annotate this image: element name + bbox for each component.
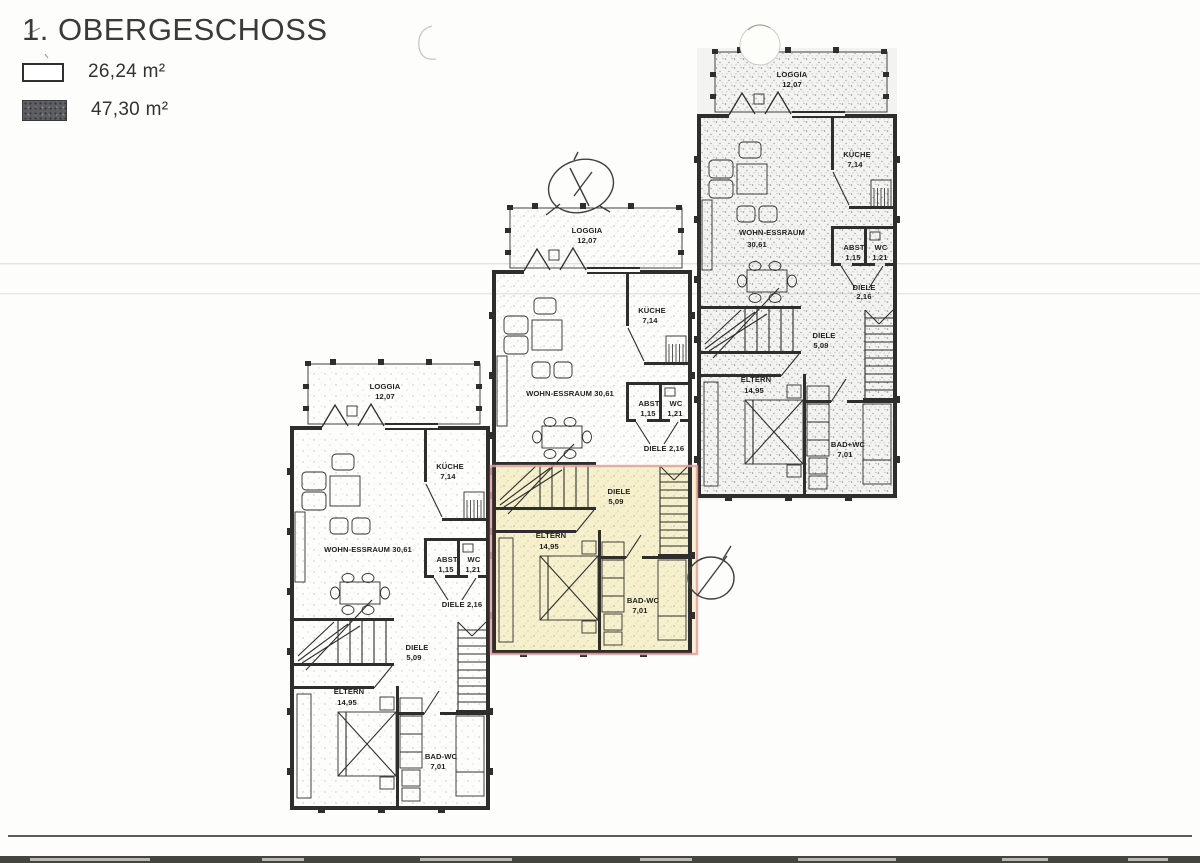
room-label-eltern: ELTERN: [536, 531, 567, 540]
room-label-wohn: WOHN-ESSRAUM 30,61: [324, 545, 412, 554]
room-label-diele5: 5,09: [813, 341, 828, 350]
room-label-bad: BAD-WC: [425, 752, 458, 761]
legend-label-white: 26,24 m²: [88, 61, 165, 83]
room-label-loggia: 12,07: [577, 236, 597, 245]
room-label-diele2: 2,16: [856, 292, 871, 301]
room-label-wc: 1,21: [465, 565, 481, 574]
bottom-scan-bar: [0, 835, 1200, 863]
floorplan-units: LOGGIA12,07KÜCHE7,14WOHN-ESSRAUM 30,61AB…: [287, 47, 900, 813]
room-label-abst: 1,15: [640, 409, 656, 418]
room-label-kueche: KÜCHE: [843, 150, 871, 159]
area-legend: 26,24 m² 47,30 m²: [22, 61, 328, 121]
unit-top-right: LOGGIA12,07KÜCHE7,14WOHN-ESSRAUM30,61ABS…: [694, 47, 900, 501]
page-title: 1. OBERGESCHOSS: [22, 12, 328, 48]
title-block: 1. OBERGESCHOSS 26,24 m² 47,30 m²: [22, 12, 328, 137]
room-label-bad: BAD-WC: [627, 596, 660, 605]
room-label-loggia: 12,07: [375, 392, 395, 401]
room-label-bad: 7,01: [430, 762, 446, 771]
room-label-eltern: 14,95: [539, 542, 559, 551]
room-label-diele5: DIELE: [608, 487, 631, 496]
room-label-abst: 1,15: [438, 565, 454, 574]
legend-label-dark: 47,30 m²: [91, 99, 168, 121]
room-label-diele2: DIELE: [853, 283, 876, 292]
room-label-diele5: DIELE: [813, 331, 836, 340]
room-label-diele5: DIELE: [406, 643, 429, 652]
room-label-loggia: LOGGIA: [572, 226, 603, 235]
room-label-abst: ABST: [843, 243, 864, 252]
room-label-bad: BAD+WC: [831, 440, 866, 449]
room-label-wc: WC: [670, 399, 683, 408]
room-label-bad: 7,01: [837, 450, 853, 459]
scan-smudge-arc: [419, 26, 436, 59]
room-label-abst: ABST: [638, 399, 659, 408]
room-label-wohn: WOHN-ESSRAUM 30,61: [526, 389, 614, 398]
room-label-kueche: 7,14: [847, 160, 863, 169]
room-label-diele2: DIELE 2,16: [644, 444, 684, 453]
room-label-wc: WC: [875, 243, 888, 252]
room-label-wc: 1,21: [667, 409, 683, 418]
unit-bottom-left: LOGGIA12,07KÜCHE7,14WOHN-ESSRAUM 30,61AB…: [287, 359, 493, 813]
unit-middle: LOGGIA12,07KÜCHE7,14WOHN-ESSRAUM 30,61AB…: [489, 203, 695, 657]
room-label-wc: WC: [468, 555, 481, 564]
room-label-kueche: KÜCHE: [638, 306, 666, 315]
room-label-eltern: 14,95: [337, 698, 357, 707]
room-label-diele5: 5,09: [608, 497, 623, 506]
room-label-wc: 1,21: [872, 253, 888, 262]
room-label-eltern: ELTERN: [334, 687, 365, 696]
scanned-floorplan-page: { "title": "1. OBERGESCHOSS", "legend": …: [0, 0, 1200, 863]
room-label-kueche: 7,14: [642, 316, 658, 325]
correction-fluid-blob: [740, 25, 780, 65]
room-label-diele5: 5,09: [406, 653, 421, 662]
room-label-abst: 1,15: [845, 253, 861, 262]
legend-swatch-dark-icon: [22, 100, 67, 121]
legend-row-white: 26,24 m²: [22, 61, 328, 83]
room-label-diele2: DIELE 2,16: [442, 600, 482, 609]
room-label-eltern: 14,95: [744, 386, 764, 395]
room-label-loggia: LOGGIA: [370, 382, 401, 391]
room-label-kueche: 7,14: [440, 472, 456, 481]
room-label-bad: 7,01: [632, 606, 648, 615]
room-label-wohn: 30,61: [747, 240, 767, 249]
room-label-loggia: 12,07: [782, 80, 802, 89]
room-label-eltern: ELTERN: [741, 375, 772, 384]
room-label-abst: ABST: [436, 555, 457, 564]
room-label-loggia: LOGGIA: [777, 70, 808, 79]
legend-swatch-white-icon: [22, 63, 64, 82]
room-label-wohn: WOHN-ESSRAUM: [739, 228, 805, 237]
room-label-kueche: KÜCHE: [436, 462, 464, 471]
legend-row-dark: 47,30 m²: [22, 99, 328, 121]
